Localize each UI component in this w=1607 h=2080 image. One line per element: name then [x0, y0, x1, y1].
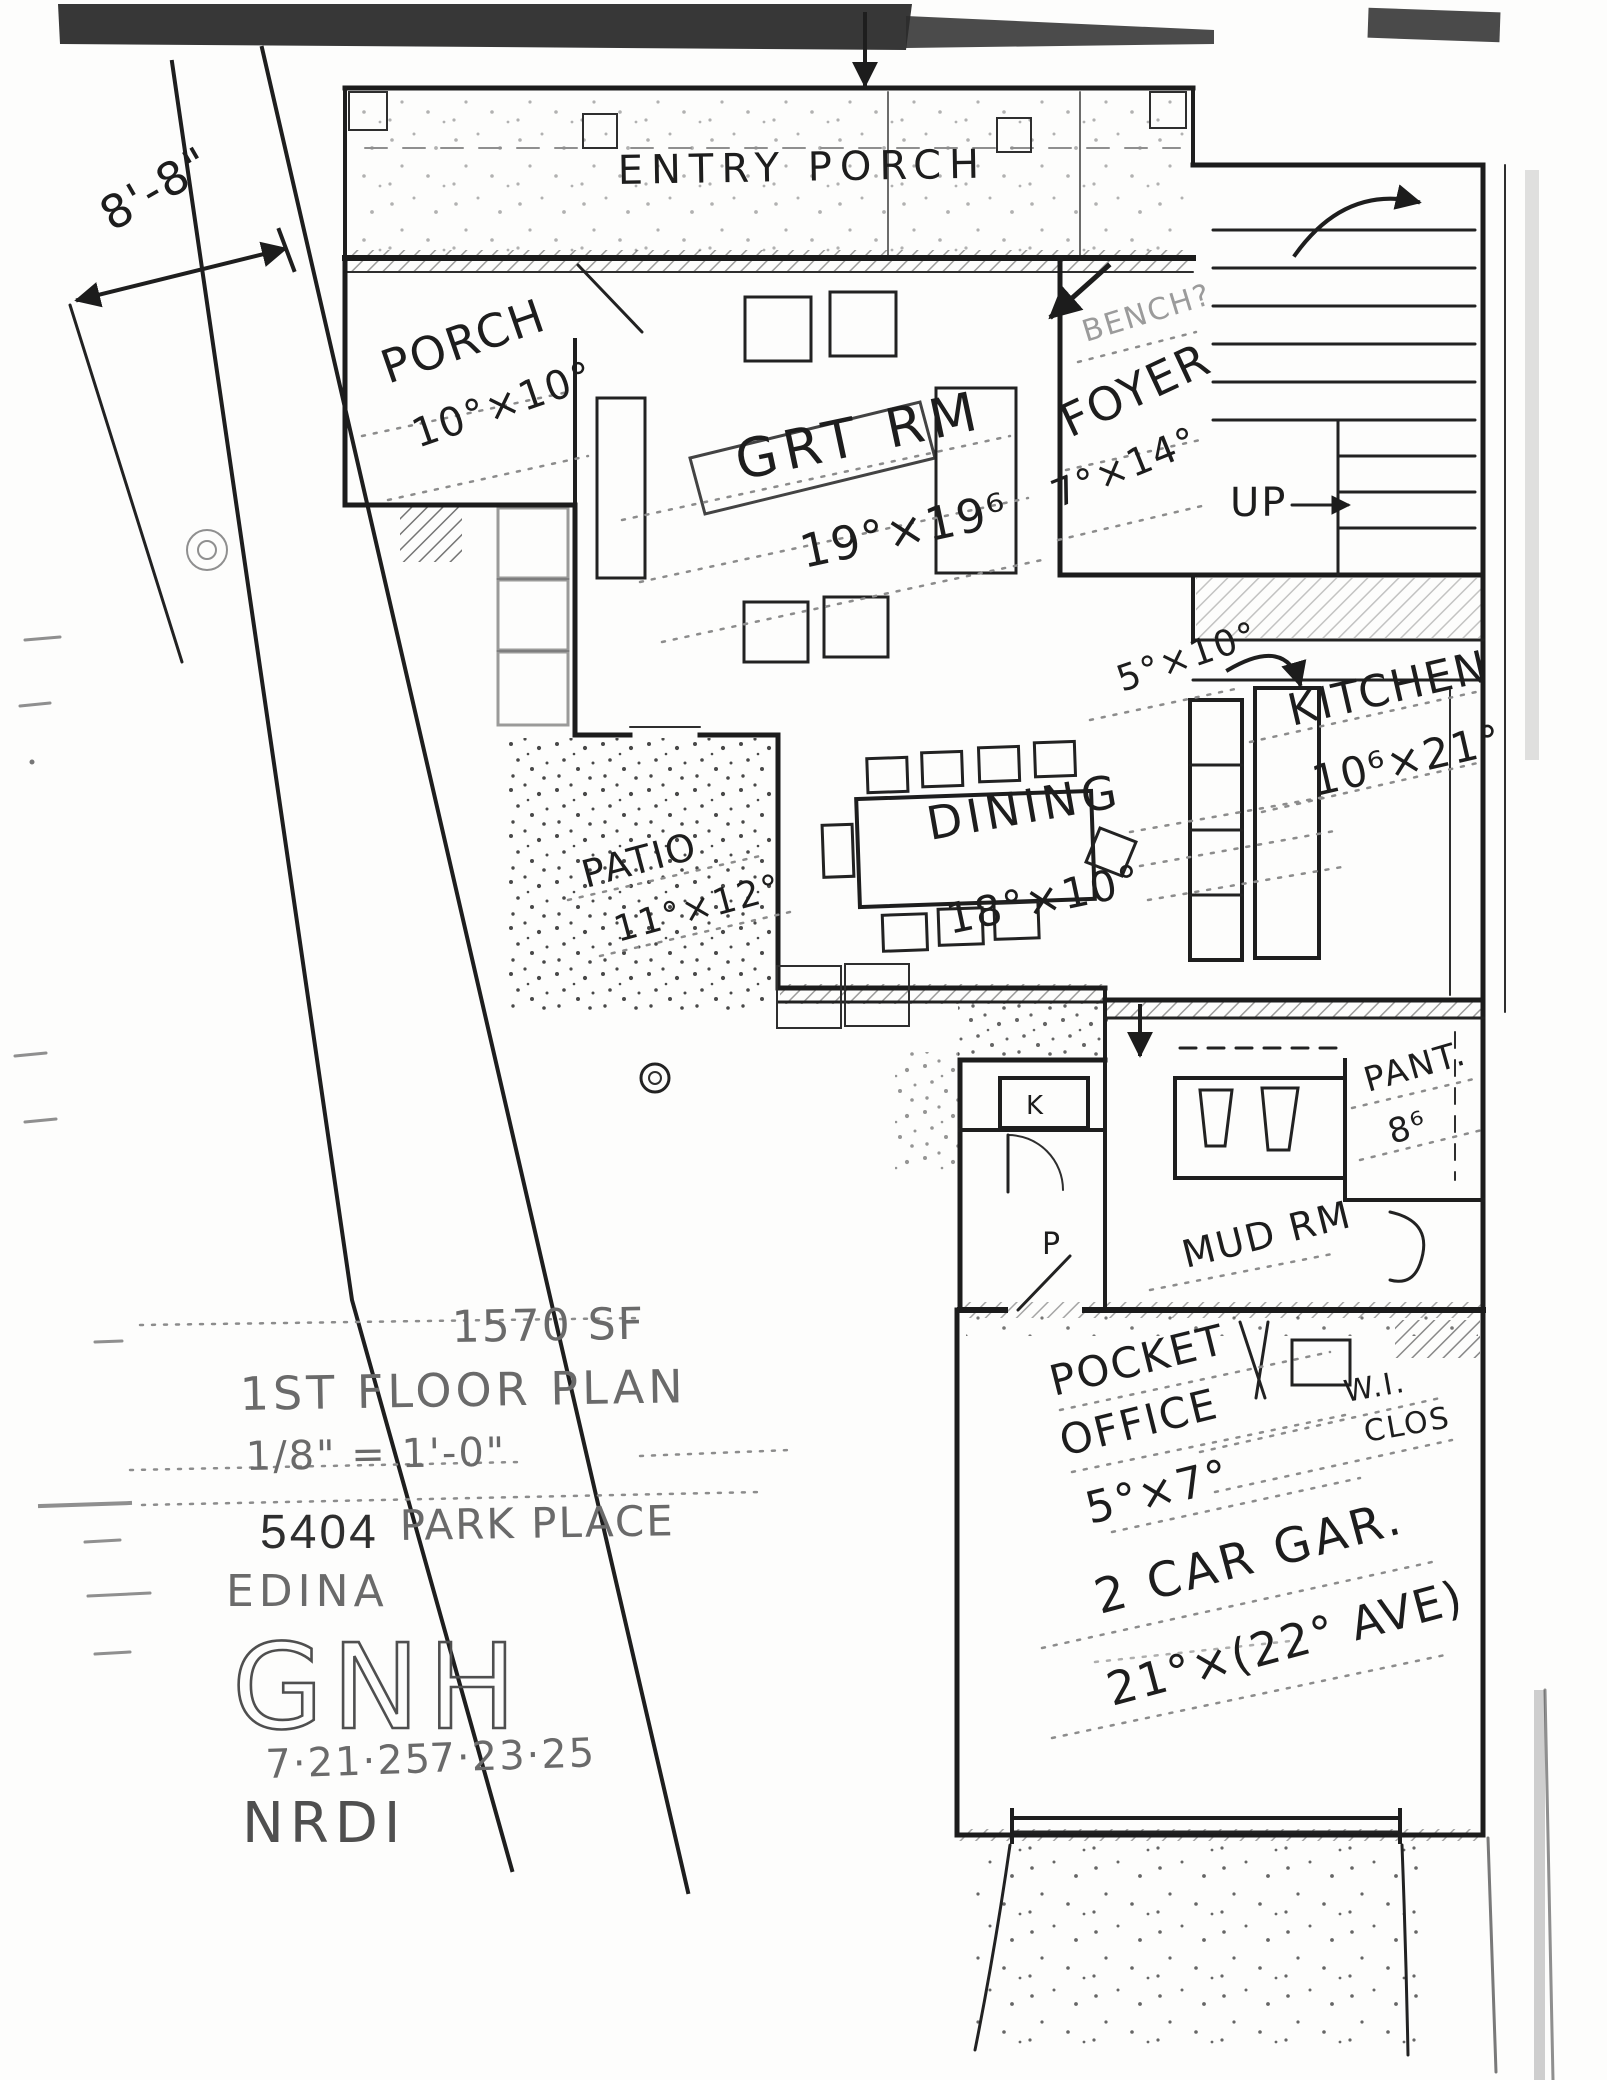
plan-scale: 1/8" = 1'-0"	[245, 1429, 506, 1480]
date-first: 7·21·25	[265, 1736, 433, 1788]
door-leaf	[578, 265, 642, 332]
address-number: 5404	[260, 1506, 379, 1559]
offset-dimension: 8'-8"	[78, 135, 294, 300]
initials-label: NRDI	[242, 1791, 406, 1856]
address-street: PARK PLACE	[399, 1496, 675, 1550]
foyer-label: FOYER	[1052, 332, 1219, 448]
entry-porch-label: ENTRY PORCH	[617, 142, 987, 194]
scan-artifacts	[15, 4, 1553, 2080]
driveway-paving	[975, 1845, 1420, 2050]
wall-hatch-bands	[347, 250, 1483, 1841]
area-label: 1570 SF	[451, 1299, 645, 1353]
stair-direction-arrow	[1295, 199, 1418, 255]
floor-plan-sketch: 8'-8"	[0, 0, 1607, 2080]
city-label: EDINA	[226, 1566, 389, 1617]
scribble	[1390, 1212, 1424, 1281]
plan-drawing: 8'-8"	[0, 0, 1607, 2080]
mud-room-label: MUD RM	[1178, 1192, 1357, 1277]
plan-title: 1ST FLOOR PLAN	[239, 1359, 687, 1421]
date-second: 7·23·25	[429, 1730, 597, 1782]
door-swing	[1008, 1135, 1063, 1190]
kitchen-dims: 10⁶×21°	[1307, 714, 1507, 805]
title-block: 1570 SF 1ST FLOOR PLAN 1/8" = 1'-0" 5404…	[226, 1299, 687, 1856]
dining-dims: 18°×10°	[942, 855, 1146, 944]
powder-mark: P	[1042, 1227, 1062, 1262]
offset-dimension-label: 8'-8"	[91, 135, 221, 241]
kitchen-island-dims: 5°×10°	[1112, 614, 1264, 701]
great-room-dims: 19°×19⁶	[795, 482, 1013, 579]
nook-mark: K	[1026, 1091, 1045, 1121]
pantry-dims: 8⁶	[1383, 1103, 1432, 1152]
door-leaf	[1018, 1256, 1070, 1310]
stairs-up-label: UP	[1230, 480, 1287, 526]
